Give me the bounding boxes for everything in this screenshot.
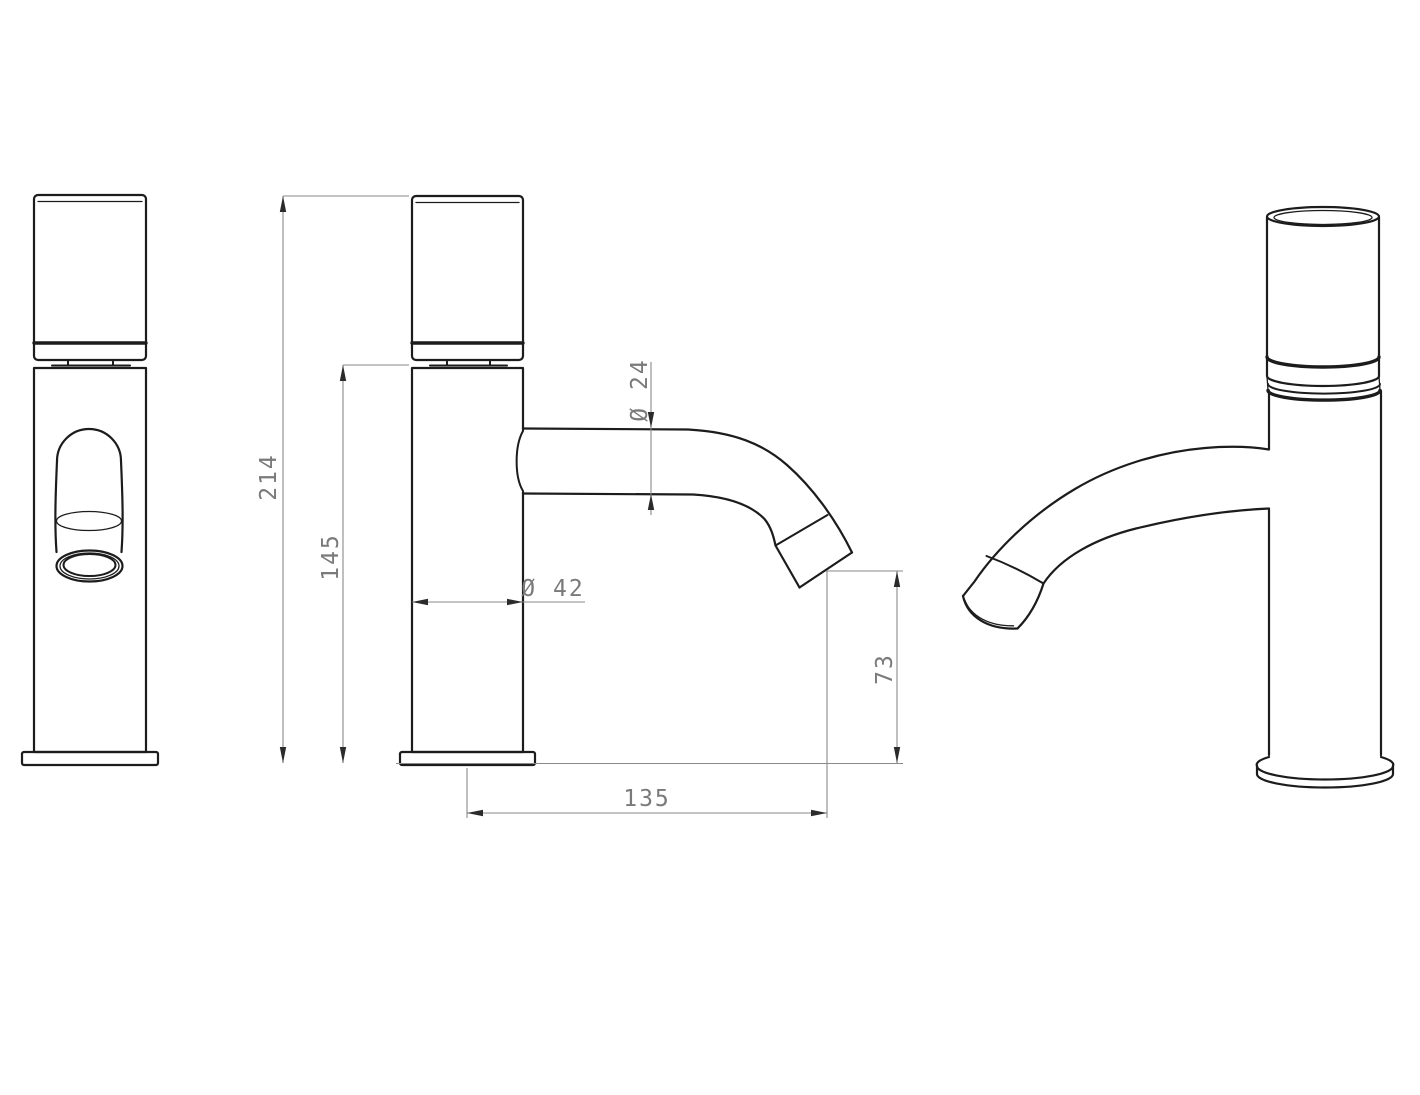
persp-cap-band-arc — [1267, 357, 1379, 367]
dim-body-diameter: Ø 42 — [412, 576, 585, 605]
arrow-up-icon — [894, 571, 900, 587]
side-spout-body-fillet — [517, 431, 523, 491]
arrow-left-icon — [412, 599, 428, 605]
dim-spout-reach: 135 — [467, 571, 827, 818]
dim-body-diameter-label: Ø 42 — [521, 576, 584, 602]
front-spout-right-edge — [121, 461, 123, 552]
arrow-up-icon — [340, 365, 346, 381]
front-base-plate — [22, 752, 158, 765]
dim-spout-diameter-label: Ø 24 — [627, 358, 653, 421]
front-view — [22, 195, 158, 765]
arrow-down-icon — [340, 747, 346, 763]
persp-spout-end-face — [963, 596, 1018, 629]
persp-base-top-back-arcs — [1257, 757, 1394, 766]
arrow-up-icon — [280, 196, 286, 212]
persp-spout-outer-edge — [963, 447, 1269, 596]
arrow-right-icon — [811, 810, 827, 816]
front-spout-top-arc — [57, 429, 121, 461]
persp-cap-top-inner-ellipse — [1274, 211, 1372, 225]
dim-overall-height-label: 214 — [256, 453, 282, 501]
front-spout-left-edge — [55, 461, 57, 552]
side-handle-cap — [412, 196, 523, 360]
front-aerator-ring — [57, 512, 122, 531]
dim-body-height-label: 145 — [318, 533, 344, 581]
side-spout-bottom-edge — [523, 494, 800, 588]
front-handle-cap — [34, 195, 146, 360]
arrow-down-icon — [894, 747, 900, 763]
front-body — [34, 368, 146, 752]
persp-base-sides — [1257, 766, 1393, 774]
side-spout-top-edge — [523, 429, 852, 553]
persp-cap-bottom-arc — [1267, 376, 1379, 386]
dim-body-height: 145 — [318, 365, 409, 763]
persp-cap-sides — [1267, 217, 1379, 376]
front-outlet-inner-ellipse — [64, 554, 116, 576]
dim-spout-diameter: Ø 24 — [627, 358, 654, 515]
persp-body-sides — [1269, 391, 1381, 755]
dim-spout-outlet-height-label: 73 — [872, 653, 898, 685]
perspective-view — [963, 207, 1393, 788]
side-view — [400, 196, 852, 765]
arrow-left-icon — [467, 810, 483, 816]
technical-drawing-canvas: 214 145 Ø 42 Ø 24 73 — [0, 0, 1420, 1095]
side-spout-end-face — [800, 553, 853, 588]
persp-base-top-front-arc — [1257, 766, 1393, 780]
drawing-sheet: 214 145 Ø 42 Ø 24 73 — [0, 0, 1420, 1095]
dim-spout-reach-label: 135 — [623, 786, 671, 812]
side-spout-aerator-line — [776, 515, 828, 546]
dim-overall-height: 214 — [256, 196, 409, 763]
persp-spout-aerator-line — [987, 556, 1044, 584]
persp-spout-inner-edge — [1018, 509, 1270, 629]
arrow-up-icon — [648, 494, 654, 510]
arrow-down-icon — [280, 747, 286, 763]
persp-ring-lower-arc — [1268, 391, 1380, 401]
dimensions: 214 145 Ø 42 Ø 24 73 — [256, 196, 903, 818]
side-body — [412, 368, 523, 752]
